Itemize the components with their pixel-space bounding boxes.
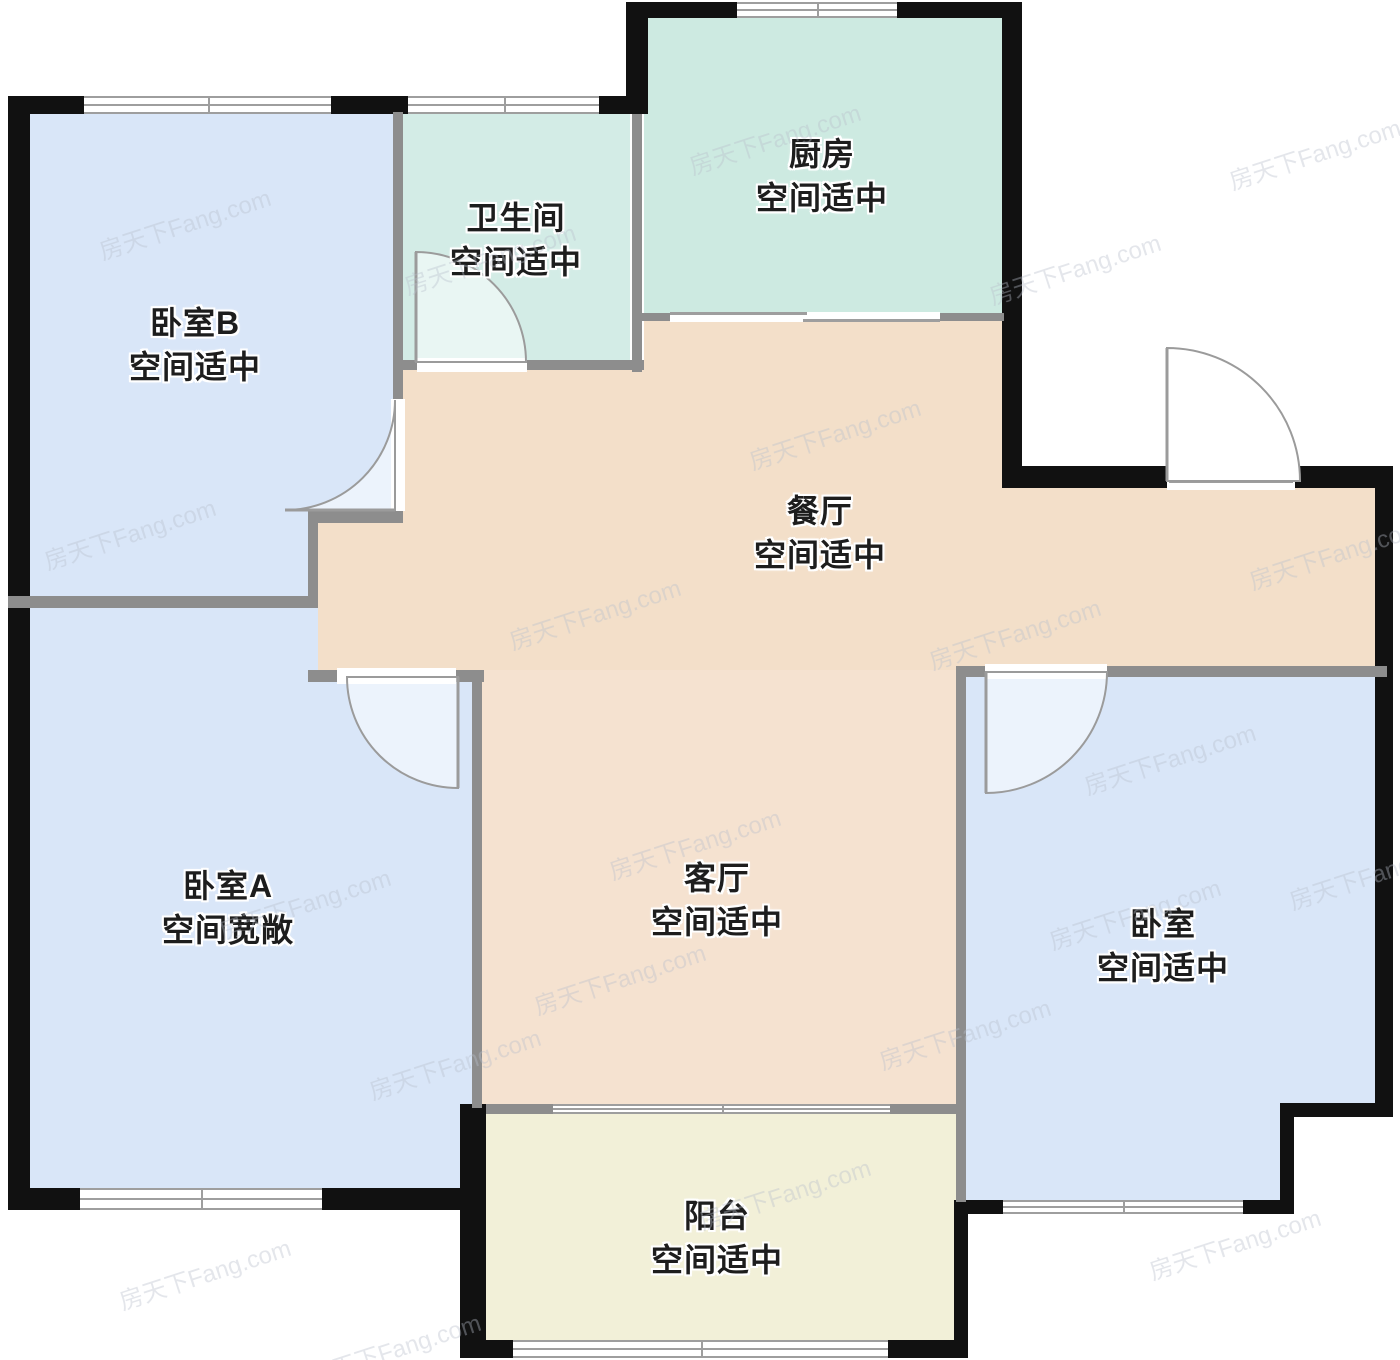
- room-name: 卧室A: [78, 864, 378, 908]
- room-label-bedroom-a: 卧室A 空间宽敞: [78, 864, 378, 952]
- kitchen-top-wall-seg1: [626, 2, 737, 18]
- bedroom-a-top-wall-seg1: [308, 670, 337, 682]
- window-kitchen-top: [737, 2, 897, 18]
- room-floor-bedroom-lower: [963, 1107, 1282, 1202]
- window-balcony-bottom: [513, 1340, 888, 1358]
- window-bedroom-bottom: [1003, 1200, 1243, 1214]
- room-label-kitchen: 厨房 空间适中: [672, 132, 972, 220]
- bedroom-left-wall: [956, 675, 966, 1202]
- entry-door-threshold: [1169, 480, 1293, 483]
- outer-wall-top-seg1: [8, 96, 84, 114]
- watermark-text: 房天下Fang.com: [1224, 108, 1400, 197]
- door-opening-entry: [1167, 464, 1295, 490]
- door-opening-bedroom: [985, 664, 1107, 679]
- kitchen-left-wall-upper: [626, 2, 648, 114]
- bathroom-bottom-wall-seg2: [527, 360, 644, 370]
- kitchen-bottom-wall-seg1: [642, 313, 670, 321]
- hall-jog-wall-vertical: [308, 511, 318, 608]
- window-bathroom-top: [408, 96, 599, 114]
- room-status: 空间宽敞: [78, 908, 378, 952]
- kitchen-right-wall: [1002, 2, 1022, 488]
- room-floor-dining-under-kitchen: [644, 315, 1004, 372]
- door-opening-bedroom-a: [337, 668, 456, 684]
- balcony-bottom-wall-seg1: [460, 1340, 513, 1358]
- door-opening-bathroom: [417, 358, 527, 372]
- bedroom-a-bottom-wall-seg1: [8, 1188, 80, 1210]
- room-status: 空间适中: [366, 240, 666, 284]
- door-opening-bedroom-b: [391, 399, 405, 511]
- room-name: 卧室: [1013, 902, 1313, 946]
- bedroom-bottom-wall-seg2: [1243, 1200, 1294, 1214]
- outer-wall-left: [8, 96, 30, 1210]
- room-label-bathroom: 卫生间 空间适中: [366, 196, 666, 284]
- room-floor-dining-entry: [1022, 486, 1379, 670]
- room-floor-bedroom-main: [963, 675, 1379, 1107]
- room-name: 厨房: [672, 132, 972, 176]
- kitchen-bottom-wall-seg2: [940, 313, 1004, 321]
- room-label-bedroom: 卧室 空间适中: [1013, 902, 1313, 990]
- room-name: 卧室B: [45, 301, 345, 345]
- room-floor-dining-jut: [318, 521, 482, 674]
- notch-wall-horizontal: [1280, 1103, 1393, 1117]
- window-bedroom-a-bottom: [80, 1188, 322, 1210]
- window-living-balcony-slider: [553, 1104, 890, 1114]
- balcony-right-wall: [954, 1200, 968, 1358]
- window-bedroom-b-top: [84, 96, 331, 114]
- room-status: 空间适中: [670, 533, 970, 577]
- door-swing-entry: [1167, 348, 1300, 481]
- room-name: 阳台: [567, 1194, 867, 1238]
- room-status: 空间适中: [45, 345, 345, 389]
- room-status: 空间适中: [1013, 946, 1313, 990]
- room-status: 空间适中: [567, 1238, 867, 1282]
- bedroom-top-wall-seg2: [1107, 666, 1387, 677]
- watermark-text: 房天下Fang.com: [304, 1303, 485, 1360]
- room-label-balcony: 阳台 空间适中: [567, 1194, 867, 1282]
- room-label-living: 客厅 空间适中: [567, 856, 867, 944]
- floor-plan: 卧室B 空间适中 卫生间 空间适中 厨房 空间适中 餐厅 空间适中 卧室A 空间…: [0, 0, 1400, 1360]
- notch-wall-vertical: [1280, 1103, 1294, 1214]
- balcony-left-wall: [460, 1104, 486, 1358]
- room-name: 客厅: [567, 856, 867, 900]
- bedroom-divider-wall: [8, 596, 318, 608]
- outer-wall-right: [1375, 466, 1393, 1117]
- room-status: 空间适中: [672, 176, 972, 220]
- entry-wall-seg1: [1022, 466, 1167, 488]
- kitchen-slider-panel-right: [803, 319, 940, 322]
- room-name: 餐厅: [670, 489, 970, 533]
- living-balcony-wall-seg1: [486, 1104, 553, 1114]
- room-name: 卫生间: [366, 196, 666, 240]
- room-status: 空间适中: [567, 900, 867, 944]
- watermark-text: 房天下Fang.com: [114, 1228, 295, 1317]
- bedroom-a-right-wall: [472, 680, 482, 1108]
- hall-jog-wall-horizontal: [308, 511, 403, 523]
- living-balcony-wall-seg2: [890, 1104, 957, 1114]
- room-label-dining: 餐厅 空间适中: [670, 489, 970, 577]
- room-label-bedroom-b: 卧室B 空间适中: [45, 301, 345, 389]
- bedroom-a-bottom-wall-seg2: [322, 1188, 486, 1210]
- kitchen-slider-panel-left: [670, 312, 807, 315]
